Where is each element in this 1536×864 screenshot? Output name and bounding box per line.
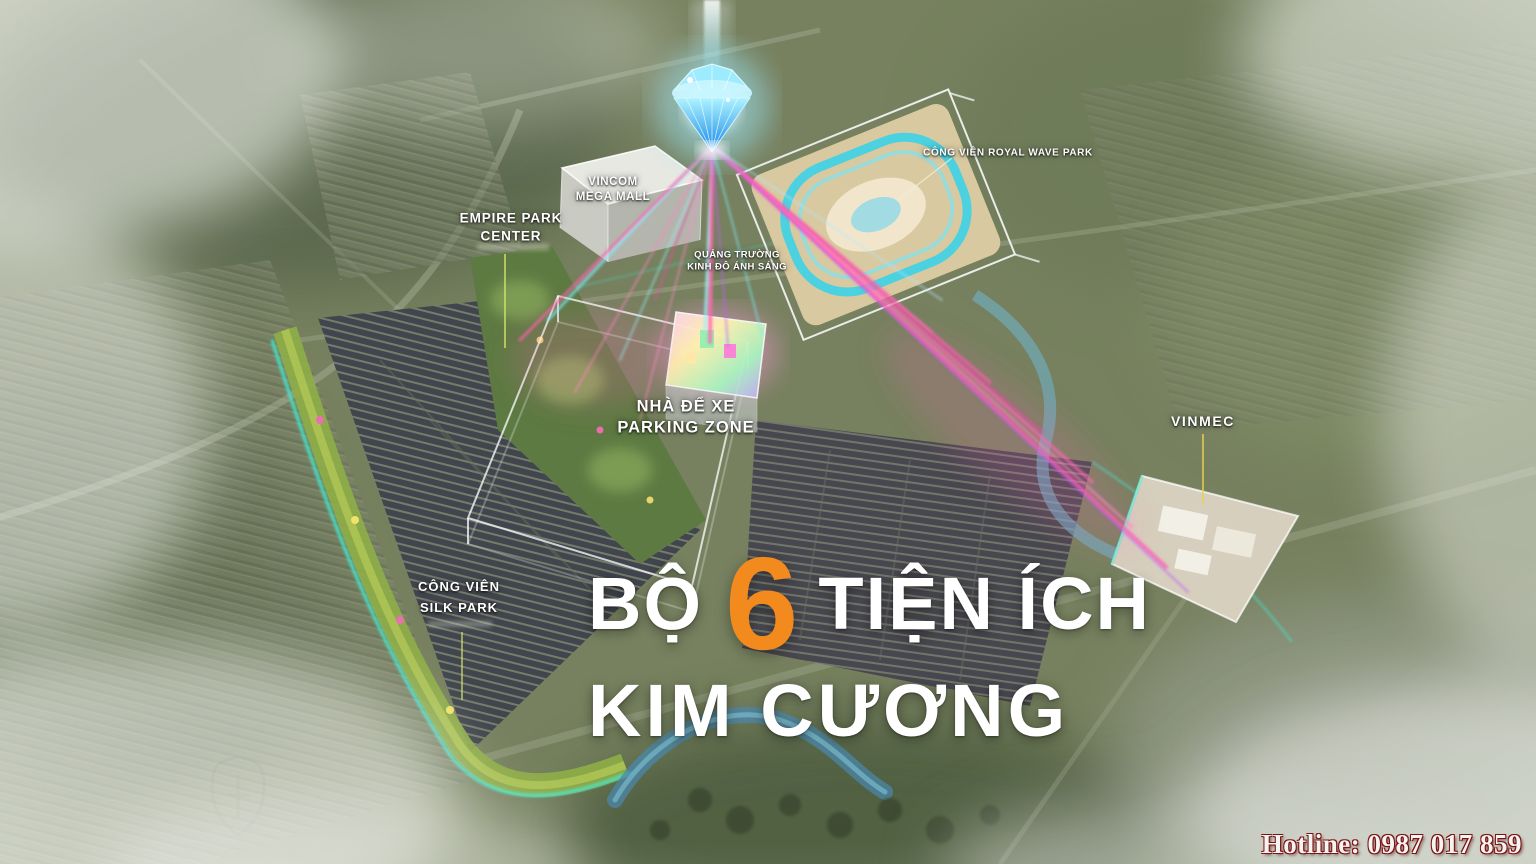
title-word-tien-ich: TIỆN ÍCH — [818, 567, 1151, 641]
label-line: VINMEC — [1171, 412, 1235, 430]
title-line-1: BỘ 6 TIỆN ÍCH — [588, 548, 1151, 660]
illegible-subtext — [477, 244, 549, 251]
label-line: NHÀ ĐỂ XE — [617, 397, 754, 418]
label-line: EMPIRE PARK — [460, 209, 563, 227]
label-line: SILK PARK — [418, 598, 500, 619]
label-line: VINCOM — [576, 175, 651, 190]
label-line: CÔNG VIÊN — [418, 577, 500, 598]
label-light-plaza: QUẢNG TRƯỜNG KINH ĐÔ ÁNH SÁNG — [687, 250, 787, 275]
title-number-6: 6 — [725, 548, 798, 660]
label-vincom-mega-mall: VINCOM MEGA MALL — [576, 175, 651, 205]
poster-canvas: VINCOM MEGA MALL EMPIRE PARK CENTER CÔNG… — [0, 0, 1536, 864]
label-line: PARKING ZONE — [617, 418, 754, 439]
title-line-2: KIM CƯƠNG — [588, 674, 1151, 748]
label-line: MEGA MALL — [576, 190, 651, 205]
main-title: BỘ 6 TIỆN ÍCH KIM CƯƠNG — [588, 548, 1151, 748]
illegible-subtext — [428, 621, 492, 627]
label-line: QUẢNG TRƯỜNG — [687, 250, 787, 262]
hotline-text: Hotline: 0987 017 859 — [1262, 829, 1522, 860]
label-silk-park: CÔNG VIÊN SILK PARK — [418, 577, 500, 619]
label-empire-park-center: EMPIRE PARK CENTER — [460, 209, 563, 244]
title-word-bo: BỘ — [588, 567, 703, 641]
label-line: CENTER — [460, 227, 563, 245]
label-vinmec: VINMEC — [1171, 412, 1235, 430]
label-line: KINH ĐÔ ÁNH SÁNG — [687, 262, 787, 274]
label-royal-wave-park: CÔNG VIÊN ROYAL WAVE PARK — [923, 147, 1093, 160]
label-line: CÔNG VIÊN ROYAL WAVE PARK — [923, 147, 1093, 160]
label-parking-zone: NHÀ ĐỂ XE PARKING ZONE — [617, 397, 754, 440]
